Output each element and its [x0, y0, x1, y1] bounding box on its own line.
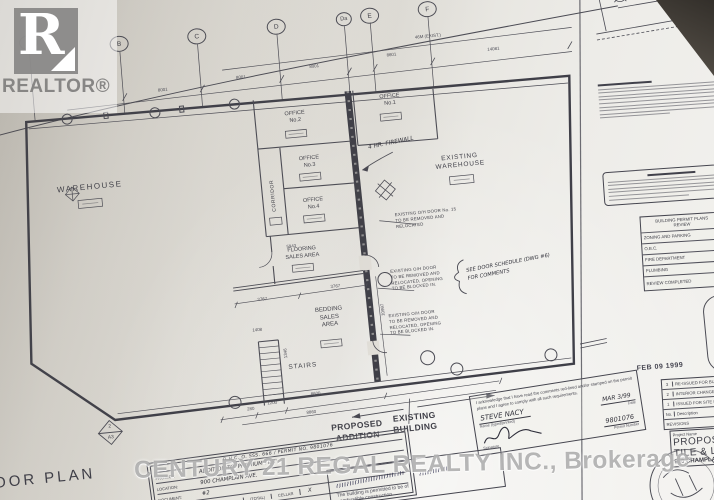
revision-no: 3 — [662, 382, 673, 388]
realtor-wordmark: REALTOR® — [2, 76, 110, 98]
dim-label: 1346 — [282, 348, 288, 358]
dim-label: 3767 — [330, 283, 340, 289]
room-label-office4: OFFICE No.4 — [303, 196, 324, 212]
permit-row-total: (TOTAL) — [243, 493, 272, 500]
building-permit-review-table: BUILDING PERMIT PLANS REVIEW ZONING AND … — [639, 209, 714, 292]
room-label-bedding: BEDDING SALES AREA — [315, 305, 344, 330]
revision-desc: INTERIOR CHANGES / SI — [673, 388, 714, 396]
room-label-office3: OFFICE No.3 — [299, 154, 320, 170]
section-marker-number: 2 — [108, 424, 111, 430]
dim-label: 1408 — [252, 327, 262, 333]
dim-label: 8001 — [236, 74, 246, 80]
revisions-no-header: No. — [664, 411, 675, 417]
revision-desc: RE-ISSUED FOR BUILDING — [673, 378, 714, 386]
revision-no: 1 — [663, 401, 674, 407]
dim-label: 10997 — [380, 303, 387, 316]
realtor-watermark: R REALTOR® — [0, 0, 117, 113]
dim-label: 280 — [247, 406, 255, 412]
permit-row-value: #2 — [201, 490, 210, 497]
permit-row-label: DOCUMENT: — [158, 492, 202, 500]
floor-plan-photo: B C D Da E F 8001 8001 8001 8601 14081 4… — [0, 0, 714, 500]
dim-label: 8001 — [158, 87, 168, 93]
ack-date-label: Date — [628, 400, 637, 405]
dim-label: 8600 — [310, 390, 320, 396]
revisions-footer: REVISIONS — [664, 421, 689, 428]
permit-row-value: 918.5 — [203, 497, 243, 500]
dim-label: 8860 — [306, 409, 316, 415]
room-label-office1: OFFICE No.1 — [379, 92, 400, 108]
dim-label: 3767 — [257, 296, 267, 302]
revisions-desc-header: Description — [675, 410, 698, 416]
dim-label: 1200 — [267, 400, 277, 406]
room-label-office2: OFFICE No.2 — [284, 110, 305, 126]
revision-no: 2 — [663, 392, 674, 398]
dim-label: 8001 — [309, 63, 319, 69]
realtor-logo-icon: R — [14, 8, 78, 74]
dim-label: 8601 — [386, 52, 396, 58]
realtor-triangle-icon — [51, 47, 75, 71]
revision-desc: ISSUED FOR SITE PLAN — [674, 398, 714, 406]
dim-label: 14081 — [487, 46, 500, 53]
review-completed-label: REVIEW COMPLETED — [644, 276, 714, 286]
revisions-table: 3RE-ISSUED FOR BUILDING 2INTERIOR CHANGE… — [661, 371, 714, 430]
section-marker-sheet: A3 — [108, 435, 114, 442]
